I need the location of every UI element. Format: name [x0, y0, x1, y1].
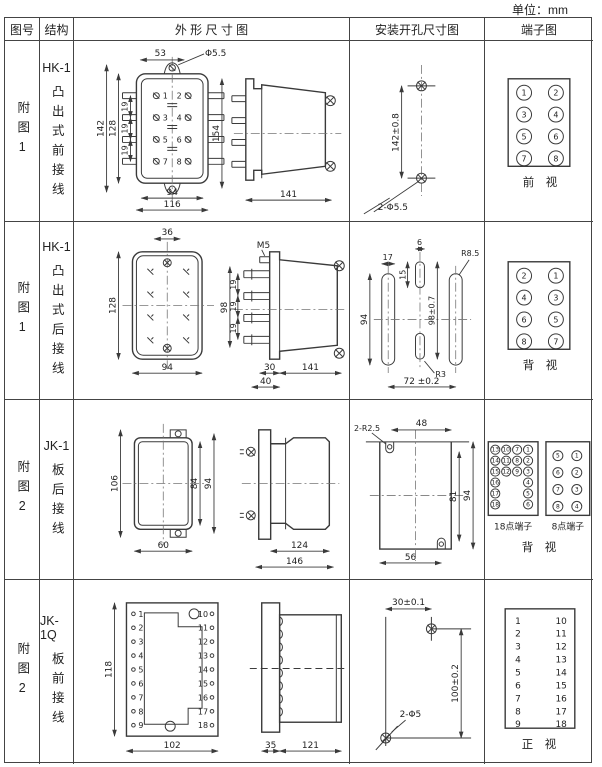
svg-text:8点端子: 8点端子	[552, 520, 585, 532]
svg-text:98±0.7: 98±0.7	[427, 296, 436, 325]
svg-text:7: 7	[515, 447, 519, 454]
svg-text:81: 81	[449, 491, 459, 502]
svg-text:6: 6	[138, 679, 143, 688]
terminal-diagram-row4: 1 2 3 4 5 6 7 8 9 10 11 12 13 14 15 16 1…	[485, 580, 593, 764]
svg-text:12: 12	[502, 469, 510, 476]
svg-text:48: 48	[416, 419, 428, 429]
svg-text:13: 13	[491, 447, 499, 454]
svg-text:94: 94	[167, 188, 179, 198]
svg-text:19: 19	[229, 323, 238, 333]
svg-text:35: 35	[265, 741, 276, 751]
hk1-rear-mounting-svg: 17 6 15 R8.5 94 98±0.7 R3 72 ±0.2	[350, 222, 484, 399]
svg-text:2: 2	[138, 623, 143, 632]
svg-text:7: 7	[138, 693, 143, 702]
svg-text:3: 3	[553, 294, 558, 303]
svg-text:3: 3	[138, 637, 143, 646]
svg-text:9: 9	[515, 720, 521, 730]
jk1q-terminal-svg: 1 2 3 4 5 6 7 8 9 10 11 12 13 14 15 16 1…	[485, 581, 593, 764]
svg-text:94: 94	[162, 363, 174, 373]
spec-table: 图号 结构 外 形 尺 寸 图 安装开孔尺寸图 端子图 附图1 HK-1 凸出式…	[4, 17, 592, 763]
svg-text:94: 94	[463, 489, 473, 501]
svg-text:142: 142	[97, 120, 107, 137]
terminal-diagram-row1: 1 2 3 4 5 6 7 8 前 视	[485, 41, 593, 222]
hk1-rear-outline-svg: 36 128 94 M5 98 19	[74, 222, 349, 399]
jk1-mounting-svg: 2-R2.5 48 81 94 56	[350, 400, 484, 579]
svg-text:10: 10	[502, 447, 510, 454]
svg-text:5: 5	[138, 665, 143, 674]
model-name: JK-1	[44, 439, 70, 453]
svg-text:12: 12	[198, 637, 208, 646]
svg-text:14: 14	[198, 665, 208, 674]
svg-text:2-Φ5.5: 2-Φ5.5	[378, 203, 408, 213]
svg-text:3: 3	[515, 642, 521, 652]
svg-text:1: 1	[138, 609, 143, 618]
svg-text:19: 19	[120, 145, 129, 155]
svg-text:141: 141	[280, 190, 297, 200]
model-name: HK-1	[42, 240, 70, 254]
svg-text:6: 6	[515, 681, 521, 691]
svg-text:8: 8	[553, 154, 558, 163]
svg-text:R8.5: R8.5	[461, 249, 479, 258]
svg-text:84: 84	[190, 478, 200, 490]
svg-text:3: 3	[522, 111, 527, 120]
svg-text:18: 18	[555, 720, 567, 730]
svg-text:4: 4	[553, 111, 558, 120]
svg-text:30: 30	[264, 363, 276, 373]
svg-text:17: 17	[555, 707, 566, 717]
svg-text:56: 56	[405, 553, 417, 563]
svg-text:12: 12	[555, 642, 566, 652]
header-outline: 外 形 尺 寸 图	[74, 18, 350, 41]
svg-text:2: 2	[522, 272, 527, 281]
figure-label-row2: 附图1	[5, 222, 40, 400]
figure-label-row1: 附图1	[5, 41, 40, 222]
svg-text:4: 4	[526, 480, 530, 487]
mounting-drawing-row1: 142±0.8 2-Φ5.5	[350, 41, 485, 222]
svg-text:1: 1	[515, 616, 521, 626]
wiring-type: 板前接线	[50, 652, 63, 730]
header-mounting: 安装开孔尺寸图	[350, 18, 485, 41]
svg-text:8: 8	[522, 337, 527, 346]
svg-text:60: 60	[158, 541, 170, 551]
svg-text:2: 2	[515, 629, 521, 639]
svg-text:18: 18	[198, 721, 208, 730]
svg-text:5: 5	[553, 315, 558, 324]
svg-text:7: 7	[515, 694, 521, 704]
svg-text:2-R2.5: 2-R2.5	[354, 424, 380, 433]
outline-drawing-row4: 1 2 3 4 5 6 7 8 9 10 11 12	[74, 580, 350, 764]
svg-text:2: 2	[553, 89, 558, 98]
jk1q-mounting-svg: 30±0.1 100±0.2 2-Φ5	[350, 581, 484, 764]
svg-text:5: 5	[522, 132, 527, 141]
header-figure: 图号	[5, 18, 40, 41]
svg-text:11: 11	[198, 623, 208, 632]
svg-text:16: 16	[198, 693, 208, 702]
svg-text:4: 4	[575, 503, 579, 510]
svg-text:36: 36	[162, 228, 174, 238]
svg-text:15: 15	[555, 681, 566, 691]
terminal-diagram-row3: 13 14 15 16 17 18 10 11 12 7 8 9 1 2 3 4…	[485, 400, 593, 580]
jk1q-outline-svg: 1 2 3 4 5 6 7 8 9 10 11 12	[74, 581, 349, 764]
hk1-front-mounting-svg: 142±0.8 2-Φ5.5	[350, 41, 484, 221]
svg-text:7: 7	[556, 486, 560, 493]
svg-text:背 视: 背 视	[523, 358, 561, 372]
svg-text:6: 6	[526, 501, 530, 508]
svg-text:146: 146	[286, 557, 303, 567]
wiring-type: 凸出式前接线	[50, 85, 63, 202]
svg-text:128: 128	[109, 120, 119, 137]
structure-row2: HK-1 凸出式后接线	[40, 222, 74, 400]
svg-text:8: 8	[138, 707, 143, 716]
structure-row1: HK-1 凸出式前接线	[40, 41, 74, 222]
svg-text:1: 1	[522, 89, 527, 98]
svg-text:2: 2	[526, 458, 530, 465]
svg-text:1: 1	[553, 272, 558, 281]
svg-text:正 视: 正 视	[522, 737, 560, 751]
svg-text:3: 3	[575, 486, 579, 493]
model-name: HK-1	[42, 61, 70, 75]
mounting-drawing-row4: 30±0.1 100±0.2 2-Φ5	[350, 580, 485, 764]
svg-text:10: 10	[555, 616, 567, 626]
svg-text:2: 2	[575, 470, 579, 477]
jk1-terminal-svg: 13 14 15 16 17 18 10 11 12 7 8 9 1 2 3 4…	[485, 400, 593, 579]
wiring-type: 板后接线	[50, 463, 63, 541]
model-name: JK-1Q	[40, 614, 73, 642]
svg-text:11: 11	[502, 458, 510, 465]
terminal-diagram-row2: 2 1 4 3 6 5 8 7 背 视	[485, 222, 593, 400]
hk1-front-terminal-svg: 1 2 3 4 5 6 7 8 前 视	[485, 41, 593, 221]
svg-text:M5: M5	[257, 241, 270, 251]
svg-text:8: 8	[515, 707, 521, 717]
svg-text:100±0.2: 100±0.2	[451, 664, 461, 703]
mounting-drawing-row2: 17 6 15 R8.5 94 98±0.7 R3 72 ±0.2	[350, 222, 485, 400]
svg-text:13: 13	[555, 655, 566, 665]
svg-text:19: 19	[120, 102, 129, 112]
svg-text:15: 15	[198, 679, 208, 688]
svg-text:5: 5	[515, 668, 521, 678]
svg-text:5: 5	[163, 135, 168, 144]
svg-text:15: 15	[399, 270, 408, 280]
svg-text:8: 8	[515, 458, 519, 465]
svg-text:5: 5	[556, 453, 560, 460]
svg-text:18: 18	[491, 501, 499, 508]
svg-text:7: 7	[522, 154, 527, 163]
svg-text:9: 9	[515, 469, 519, 476]
svg-text:19: 19	[120, 123, 129, 133]
svg-text:7: 7	[553, 337, 558, 346]
mounting-drawing-row3: 2-R2.5 48 81 94 56	[350, 400, 485, 580]
svg-text:8: 8	[556, 503, 560, 510]
svg-text:14: 14	[491, 458, 499, 465]
svg-text:30±0.1: 30±0.1	[392, 598, 425, 608]
svg-text:3: 3	[526, 469, 530, 476]
svg-text:10: 10	[198, 609, 208, 618]
svg-text:16: 16	[555, 694, 567, 704]
svg-text:94: 94	[204, 478, 214, 490]
svg-text:19: 19	[229, 280, 238, 290]
svg-text:2-Φ5: 2-Φ5	[400, 710, 422, 720]
figure-label-row4: 附图2	[5, 580, 40, 764]
svg-text:4: 4	[515, 655, 521, 665]
svg-text:18点端子: 18点端子	[494, 520, 532, 532]
svg-text:1: 1	[575, 453, 579, 460]
svg-text:116: 116	[164, 200, 181, 210]
figure-label-row3: 附图2	[5, 400, 40, 580]
svg-text:前 视: 前 视	[523, 175, 561, 189]
svg-text:141: 141	[302, 363, 319, 373]
svg-text:72 ±0.2: 72 ±0.2	[404, 377, 440, 387]
jk1-outline-svg: 106 84 94 60 124 146	[74, 400, 349, 579]
svg-text:1: 1	[526, 447, 530, 454]
svg-text:5: 5	[526, 490, 530, 497]
outline-drawing-row3: 106 84 94 60 124 146	[74, 400, 350, 580]
svg-text:17: 17	[491, 490, 499, 497]
svg-text:19: 19	[229, 301, 238, 311]
svg-text:118: 118	[105, 660, 115, 677]
svg-text:6: 6	[553, 132, 558, 141]
svg-text:94: 94	[360, 313, 370, 325]
svg-text:背 视: 背 视	[522, 540, 560, 554]
svg-text:8: 8	[177, 157, 182, 166]
svg-text:17: 17	[383, 253, 393, 262]
svg-text:124: 124	[291, 541, 308, 551]
svg-text:17: 17	[198, 707, 208, 716]
structure-row3: JK-1 板后接线	[40, 400, 74, 580]
svg-text:4: 4	[138, 651, 143, 660]
svg-text:14: 14	[555, 668, 567, 678]
outline-drawing-row1: 1 2 3 4 5 6 7 8 53 Φ5.5 142 128	[74, 41, 350, 222]
svg-text:40: 40	[260, 377, 272, 387]
svg-text:6: 6	[417, 238, 422, 247]
svg-text:6: 6	[556, 470, 560, 477]
structure-row4: JK-1Q 板前接线	[40, 580, 74, 764]
svg-text:2: 2	[177, 92, 182, 101]
header-terminal: 端子图	[485, 18, 593, 41]
svg-text:9: 9	[138, 721, 143, 730]
header-structure: 结构	[40, 18, 74, 41]
svg-text:106: 106	[111, 475, 121, 492]
unit-label: 单位：mm	[512, 1, 568, 18]
relay-dimension-sheet: 单位：mm 图号 结构 外 形 尺 寸 图 安装开孔尺寸图 端子图 附图1 HK…	[0, 0, 602, 767]
svg-text:3: 3	[163, 114, 168, 123]
svg-text:11: 11	[555, 629, 566, 639]
svg-text:6: 6	[522, 315, 527, 324]
hk1-rear-terminal-svg: 2 1 4 3 6 5 8 7 背 视	[485, 222, 593, 399]
svg-text:53: 53	[155, 49, 166, 59]
svg-text:121: 121	[302, 741, 319, 751]
svg-text:4: 4	[522, 294, 527, 303]
svg-text:16: 16	[491, 480, 499, 487]
wiring-type: 凸出式后接线	[50, 264, 63, 381]
svg-text:128: 128	[109, 297, 119, 314]
svg-text:142±0.8: 142±0.8	[392, 113, 402, 152]
outline-drawing-row2: 36 128 94 M5 98 19	[74, 222, 350, 400]
svg-text:4: 4	[177, 114, 182, 123]
svg-text:6: 6	[177, 135, 182, 144]
svg-text:Φ5.5: Φ5.5	[205, 49, 226, 59]
svg-text:154: 154	[212, 125, 222, 142]
hk1-front-outline-svg: 1 2 3 4 5 6 7 8 53 Φ5.5 142 128	[74, 41, 349, 221]
svg-text:7: 7	[163, 157, 168, 166]
svg-text:15: 15	[491, 469, 499, 476]
svg-text:102: 102	[164, 741, 181, 751]
svg-text:1: 1	[163, 92, 168, 101]
svg-text:13: 13	[198, 651, 208, 660]
